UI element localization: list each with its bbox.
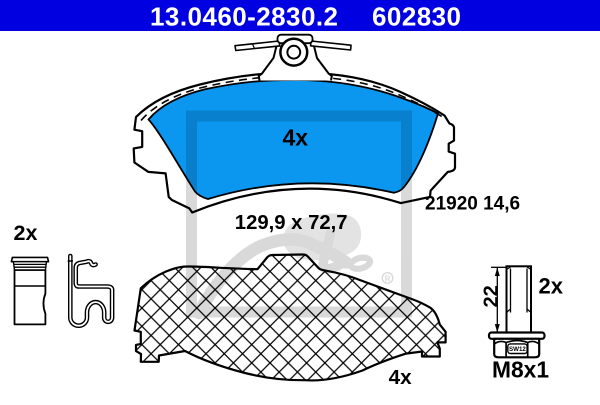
svg-text:R: R xyxy=(385,275,391,284)
svg-text:21920 14,6: 21920 14,6 xyxy=(425,193,520,214)
svg-text:13.0460-2830.2: 13.0460-2830.2 xyxy=(150,1,338,31)
svg-text:SW12: SW12 xyxy=(509,346,526,353)
svg-text:2x: 2x xyxy=(539,274,564,299)
svg-text:4x: 4x xyxy=(389,366,413,389)
svg-text:22: 22 xyxy=(481,285,503,307)
svg-text:602830: 602830 xyxy=(372,1,461,31)
svg-text:4x: 4x xyxy=(283,125,309,151)
svg-text:2x: 2x xyxy=(14,221,38,245)
svg-text:M8x1: M8x1 xyxy=(492,356,549,382)
